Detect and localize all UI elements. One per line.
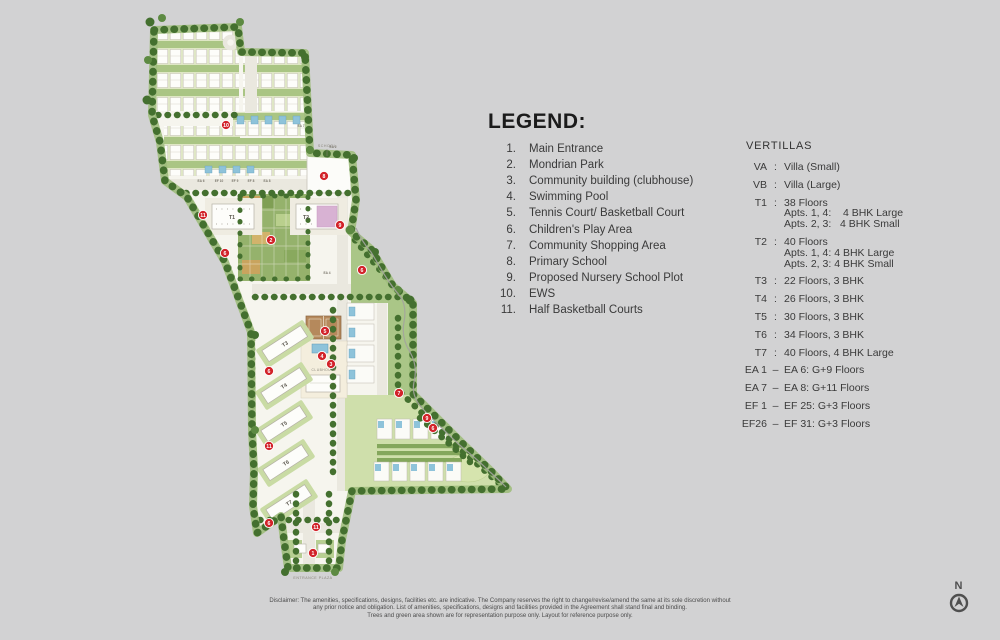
map-marker: 6 [220,248,229,257]
legend-item: 2.Mondrian Park [488,157,738,173]
unit-code: EA 7 [733,383,767,394]
unit-description: 38 FloorsApts. 1, 4: 4 BHK LargeApts. 2,… [784,198,973,230]
marker-number: 6 [361,268,364,274]
unit-description-line: Apts. 2, 3: 4 BHK Small [784,219,973,230]
vertillas-row: T5:30 Floors, 3 BHK [733,312,973,323]
unit-description-line: 22 Floors, 3 BHK [784,276,973,287]
map-marker: 11 [198,210,207,219]
unit-description-line: Villa (Small) [784,162,973,173]
map-marker: 9 [422,413,431,422]
map-marker: 7 [394,388,403,397]
unit-label: EA 4 [324,271,331,275]
legend-items: 1.Main Entrance2.Mondrian Park3.Communit… [488,141,738,318]
map-marker: 5 [320,326,329,335]
unit-description-line: EF 31: G+3 Floors [784,419,973,430]
unit-code: T4 [733,294,767,305]
vertillas-row: EA 7–EA 8: G+11 Floors [733,383,973,394]
map-marker: 6 [428,423,437,432]
map-marker: 9 [335,220,344,229]
legend-item-label: Community Shopping Area [529,240,666,252]
marker-number: 11 [266,444,272,450]
legend-item-number: 10. [488,288,529,300]
unit-label: EA 8 [264,179,271,183]
map-marker: 6 [357,265,366,274]
legend-item: 1.Main Entrance [488,141,738,157]
vertillas-row: EF 1–EF 25: G+3 Floors [733,401,973,412]
disclaimer-line: Trees and green area shown are for repre… [240,613,760,620]
marker-number: 6 [268,521,271,527]
map-marker: 11 [264,441,273,450]
unit-description-line: 40 Floors, 4 BHK Large [784,348,973,359]
vertillas-row: T1:38 FloorsApts. 1, 4: 4 BHK LargeApts.… [733,198,973,230]
legend-item: 11.Half Basketball Courts [488,302,738,318]
separator: : [767,276,784,287]
marker-number: 6 [224,251,227,257]
legend-item-number: 6. [488,224,529,236]
separator: – [767,401,784,412]
legend-item: 3.Community building (clubhouse) [488,173,738,189]
vertillas-rows: VA:Villa (Small)VB:Villa (Large)T1:38 Fl… [733,162,973,430]
legend-item-number: 2. [488,159,529,171]
legend-item: 8.Primary School [488,254,738,270]
unit-code: T5 [733,312,767,323]
tower-label: T1 [229,215,235,221]
legend-item-number: 9. [488,272,529,284]
marker-number: 1 [312,551,315,557]
unit-description: 40 FloorsApts. 1, 4: 4 BHK LargeApts. 2,… [784,237,973,269]
unit-description-line: Apts. 1, 4: 4 BHK Large [784,248,973,259]
separator: : [767,294,784,305]
marker-number: 4 [321,354,324,360]
legend-item-number: 3. [488,175,529,187]
unit-code: EA 1 [733,365,767,376]
place-label: SCHOOL [318,144,336,148]
legend-item-number: 5. [488,207,529,219]
legend-item-label: Half Basketball Courts [529,304,643,316]
map-marker: 2 [266,235,275,244]
unit-description-line: EA 8: G+11 Floors [784,383,973,394]
unit-description: EF 31: G+3 Floors [784,419,973,430]
legend-item-label: Main Entrance [529,143,603,155]
legend-item-number: 4. [488,191,529,203]
school-plot [307,155,351,193]
legend-item: 10.EWS [488,286,738,302]
unit-description-line: 34 Floors, 3 BHK [784,330,973,341]
marker-number: 6 [268,369,271,375]
disclaimer-line: any prior notice and obligation. List of… [240,605,760,612]
unit-label: EA 6 [198,179,205,183]
unit-description-line: Apts. 2, 3: 4 BHK Small [784,259,973,270]
unit-label: EF 10 [215,179,224,183]
unit-description-line: 26 Floors, 3 BHK [784,294,973,305]
vertillas-row: T6:34 Floors, 3 BHK [733,330,973,341]
marker-number: 7 [398,391,401,397]
legend-item-label: Children's Play Area [529,224,632,236]
legend-item: 7.Community Shopping Area [488,238,738,254]
unit-description: 22 Floors, 3 BHK [784,276,973,287]
north-label: N [946,580,972,592]
unit-code: EF26 [733,419,767,430]
legend-item-label: Mondrian Park [529,159,604,171]
vertillas-row: EF26–EF 31: G+3 Floors [733,419,973,430]
marker-number: 10 [223,123,229,129]
unit-code: T6 [733,330,767,341]
legend-item-number: 11. [488,304,529,316]
north-indicator: N [946,580,972,619]
map-marker: 8 [319,171,328,180]
unit-label: EA 7 [298,124,305,128]
unit-code: T1 [733,198,767,230]
unit-label: EF 9 [232,179,239,183]
separator: : [767,330,784,341]
villa-cluster [164,126,240,176]
brochure-page: EA 6EF 10EF 9EF 8EA 8EA 7EA 2EA 4 SCHOOL… [0,0,1000,640]
separator: : [767,198,784,230]
unit-description-line: EF 25: G+3 Floors [784,401,973,412]
map-marker: 6 [264,366,273,375]
marker-number: 11 [313,525,319,531]
map-marker: 4 [317,351,326,360]
vertillas-row: VB:Villa (Large) [733,180,973,191]
orchard-rows [377,444,462,462]
legend-item: 9.Proposed Nursery School Plot [488,270,738,286]
separator: – [767,383,784,394]
unit-description-line: Villa (Large) [784,180,973,191]
unit-code: T7 [733,348,767,359]
vertillas-row: VA:Villa (Small) [733,162,973,173]
vertillas-row: EA 1–EA 6: G+9 Floors [733,365,973,376]
vertillas-row: T2:40 FloorsApts. 1, 4: 4 BHK LargeApts.… [733,237,973,269]
place-label: ENTRANCE PLAZA [293,576,332,580]
tower-label: T2 [303,215,309,221]
map-marker: 6 [264,518,273,527]
separator: : [767,162,784,173]
legend-item: 5.Tennis Court/ Basketball Court [488,205,738,221]
map-marker: 10 [221,120,230,129]
marker-number: 6 [432,426,435,432]
marker-number: 3 [330,362,333,368]
separator: – [767,365,784,376]
unit-description: Villa (Large) [784,180,973,191]
legend-item-number: 8. [488,256,529,268]
unit-code: VA [733,162,767,173]
disclaimer-line: Disclaimer: The amenities, specification… [240,598,760,605]
legend-item-label: Community building (clubhouse) [529,175,693,187]
separator: : [767,180,784,191]
unit-description: EF 25: G+3 Floors [784,401,973,412]
unit-description: 40 Floors, 4 BHK Large [784,348,973,359]
marker-number: 5 [324,329,327,335]
legend-item-label: EWS [529,288,555,300]
unit-label: EF 8 [248,179,255,183]
unit-description: EA 8: G+11 Floors [784,383,973,394]
separator: : [767,312,784,323]
unit-code: T2 [733,237,767,269]
unit-description: 26 Floors, 3 BHK [784,294,973,305]
unit-description: EA 6: G+9 Floors [784,365,973,376]
vertillas-row: T4:26 Floors, 3 BHK [733,294,973,305]
marker-number: 9 [426,416,429,422]
map-marker: 3 [326,359,335,368]
legend-title: LEGEND: [488,110,738,134]
vertillas-panel: VERTILLAS VA:Villa (Small)VB:Villa (Larg… [733,140,973,437]
cul-de-sac [225,37,236,48]
marker-number: 11 [200,213,206,219]
vertillas-title: VERTILLAS [733,140,973,152]
unit-description-line: EA 6: G+9 Floors [784,365,973,376]
map-marker: 11 [311,522,320,531]
compass-icon [948,592,970,614]
legend-panel: LEGEND: 1.Main Entrance2.Mondrian Park3.… [488,110,738,318]
legend-item-label: Primary School [529,256,607,268]
unit-code: T3 [733,276,767,287]
marker-number: 8 [323,174,326,180]
separator: : [767,237,784,269]
legend-item-number: 1. [488,143,529,155]
unit-description-line: 30 Floors, 3 BHK [784,312,973,323]
marker-number: 2 [270,238,273,244]
unit-description: Villa (Small) [784,162,973,173]
legend-item-label: Swimming Pool [529,191,608,203]
legend-item-number: 7. [488,240,529,252]
legend-item-label: Tennis Court/ Basketball Court [529,207,684,219]
map-marker: 1 [308,548,317,557]
legend-item-label: Proposed Nursery School Plot [529,272,683,284]
legend-item: 6.Children's Play Area [488,221,738,237]
separator: – [767,419,784,430]
unit-description: 30 Floors, 3 BHK [784,312,973,323]
separator: : [767,348,784,359]
vertillas-row: T3:22 Floors, 3 BHK [733,276,973,287]
vertillas-row: T7:40 Floors, 4 BHK Large [733,348,973,359]
legend-item: 4.Swimming Pool [488,189,738,205]
marker-number: 9 [339,223,342,229]
disclaimer: Disclaimer: The amenities, specification… [240,598,760,620]
unit-code: VB [733,180,767,191]
unit-code: EF 1 [733,401,767,412]
unit-description: 34 Floors, 3 BHK [784,330,973,341]
